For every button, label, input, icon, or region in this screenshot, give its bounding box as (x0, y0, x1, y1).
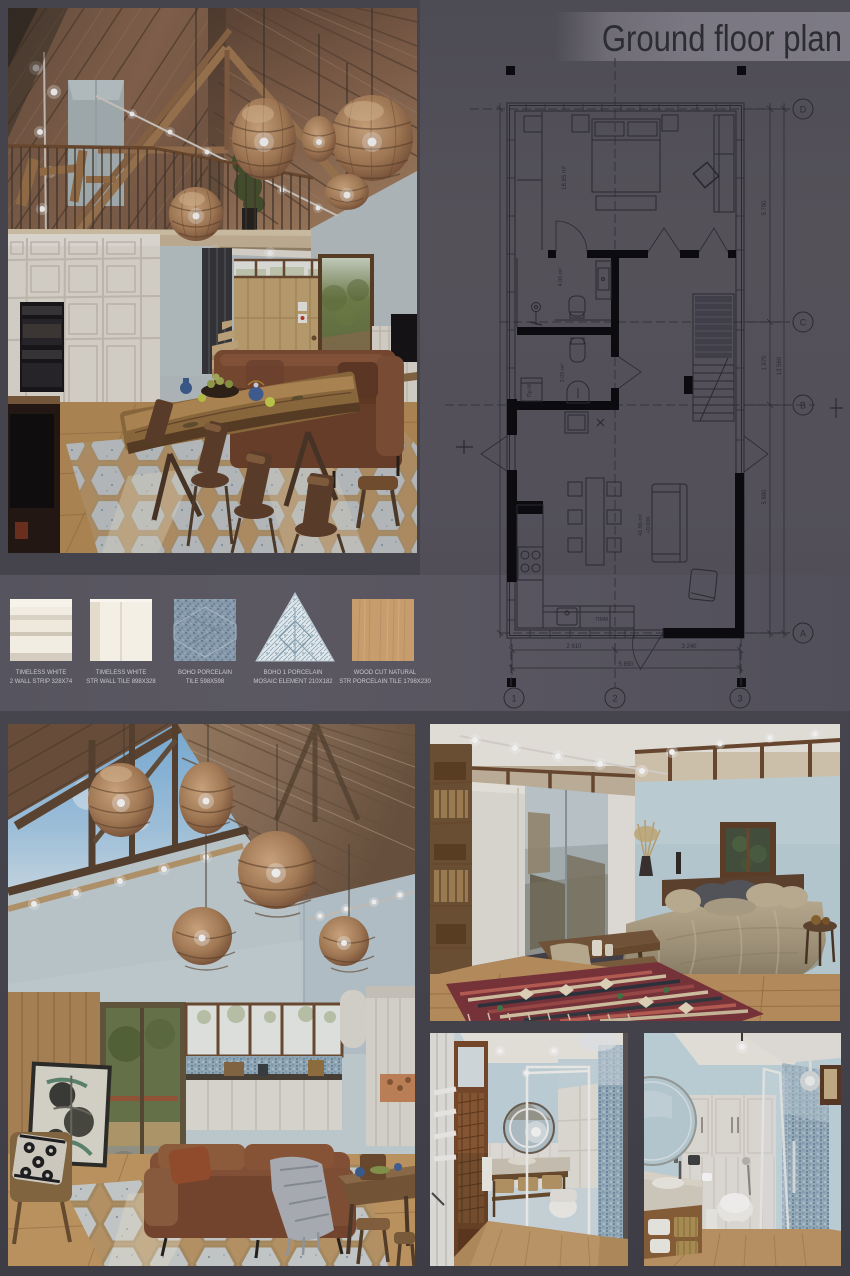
svg-text:41.96 m²: 41.96 m² (638, 514, 644, 536)
svg-text:D: D (800, 105, 807, 115)
svg-text:BOHO 1 PORCELAIN: BOHO 1 PORCELAIN (263, 670, 322, 676)
svg-text:3 240: 3 240 (681, 644, 697, 650)
svg-text:2 WALL STRIP 328X74: 2 WALL STRIP 328X74 (10, 679, 73, 685)
svg-text:BOHO PORCELAIN: BOHO PORCELAIN (178, 670, 232, 676)
svg-text:5 880: 5 880 (762, 489, 768, 505)
svg-text:A: A (800, 629, 806, 639)
svg-text:+0.000: +0.000 (646, 517, 652, 534)
svg-text:Пр.М.: Пр.М. (527, 382, 533, 397)
svg-text:2 610: 2 610 (566, 644, 582, 650)
svg-text:2: 2 (612, 694, 617, 704)
svg-text:TIMELESS WHITE: TIMELESS WHITE (16, 670, 67, 676)
svg-text:4.00 m²: 4.00 m² (558, 268, 564, 287)
svg-text:5 790: 5 790 (762, 200, 768, 216)
svg-text:WOOD CUT NATURAL: WOOD CUT NATURAL (354, 670, 417, 676)
svg-text:3.05 m²: 3.05 m² (560, 364, 566, 383)
svg-text:TILE 598X598: TILE 598X598 (186, 679, 225, 685)
svg-text:ПММ: ПММ (596, 617, 608, 623)
svg-text:13 560: 13 560 (777, 356, 783, 375)
svg-text:C: C (800, 318, 807, 328)
svg-text:B: B (800, 401, 806, 411)
svg-text:MOSAIC ELEMENT 210X182: MOSAIC ELEMENT 210X182 (253, 679, 333, 685)
svg-text:STR PORCELAIN TILE 1798X230: STR PORCELAIN TILE 1798X230 (339, 679, 431, 685)
svg-text:1: 1 (511, 694, 516, 704)
svg-text:TIMELESS WHITE: TIMELESS WHITE (96, 670, 147, 676)
svg-text:18.85 m²: 18.85 m² (562, 166, 568, 190)
svg-text:STR WALL TILE 898X328: STR WALL TILE 898X328 (86, 679, 156, 685)
svg-text:1 970: 1 970 (762, 355, 768, 371)
svg-text:3: 3 (737, 694, 742, 704)
svg-text:5 850: 5 850 (618, 662, 634, 668)
